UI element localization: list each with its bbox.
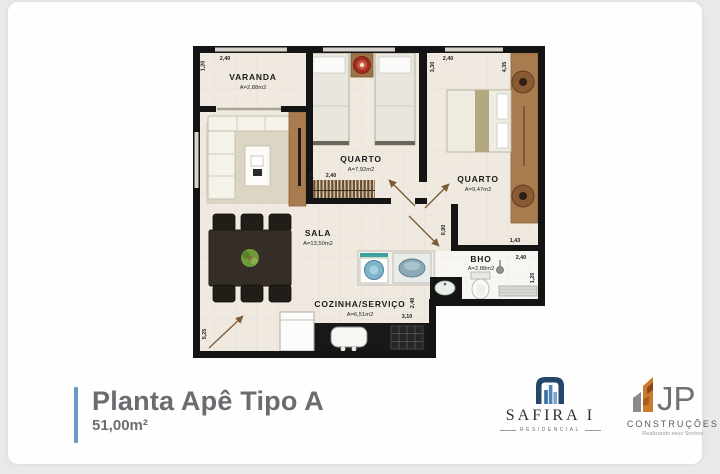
room-label-sala: SALA xyxy=(305,228,331,238)
dimension-label: 5,25 xyxy=(202,329,208,340)
room-area-cozinha: A=6,51m2 xyxy=(347,312,374,318)
safira-logo: SAFIRA I RESIDENCIAL xyxy=(500,374,601,433)
dining-chair xyxy=(241,285,263,302)
jp-tagline: Realizando seus Sonhos xyxy=(642,431,703,437)
safira-tagline: RESIDENCIAL xyxy=(520,427,581,433)
dimension-label: 1,20 xyxy=(530,273,536,284)
fridge xyxy=(280,312,314,351)
window xyxy=(445,48,503,52)
dimension-label: 2,40 xyxy=(410,298,416,309)
toilet xyxy=(471,272,490,299)
jp-logo: JP CONSTRUÇÕES Realizando seus Sonhos xyxy=(627,374,719,437)
page-title: Planta Apê Tipo A xyxy=(92,387,324,415)
window xyxy=(215,48,287,52)
dimension-label: 3,30 xyxy=(430,62,436,73)
jp-name: CONSTRUÇÕES xyxy=(627,419,719,429)
window xyxy=(323,48,395,52)
kitchen-sink xyxy=(331,327,367,347)
single-bed xyxy=(375,53,415,145)
page-subtitle: 51,00m² xyxy=(92,417,324,434)
room-label-quarto2: QUARTO xyxy=(457,174,498,184)
dining-set xyxy=(209,214,291,302)
logos: SAFIRA I RESIDENCIAL JP CONSTRUÇÕES Real… xyxy=(500,374,719,437)
dimension-label: 1,20 xyxy=(201,61,207,72)
dimension-label: 2,40 xyxy=(516,255,527,261)
room-label-quarto1: QUARTO xyxy=(340,154,381,164)
laundry-counter xyxy=(358,251,434,285)
room-label-cozinha: COZINHA/SERVIÇO xyxy=(314,299,405,309)
window xyxy=(195,132,199,188)
accent-bar xyxy=(74,387,78,443)
room-area-quarto1: A=7,92m2 xyxy=(348,167,375,173)
room-area-sala: A=13,50m2 xyxy=(303,241,333,247)
dining-chair xyxy=(213,285,235,302)
dimension-label: 4,35 xyxy=(502,62,508,73)
dimension-label: 2,40 xyxy=(326,173,337,179)
nightstand xyxy=(351,53,373,77)
divider xyxy=(585,430,601,431)
coffee-table xyxy=(245,146,270,186)
room-area-bho: A=2,88m2 xyxy=(468,266,495,272)
room-area-quarto2: A=9,47m2 xyxy=(465,187,492,193)
dimension-label: 1,43 xyxy=(510,238,521,244)
kitchen-counter xyxy=(313,323,436,351)
room-label-bho: BHO xyxy=(470,254,491,264)
tv-panel xyxy=(289,112,306,206)
dining-chair xyxy=(241,214,263,231)
presentation-card: VARANDA A=2,88m2 QUARTO A=7,92m2 QUARTO … xyxy=(8,2,702,464)
safira-name: SAFIRA I xyxy=(506,407,595,425)
dimension-label: 3,10 xyxy=(402,314,413,320)
dimension-label: 3,30 xyxy=(309,171,315,182)
floor-plan-svg: VARANDA A=2,88m2 QUARTO A=7,92m2 QUARTO … xyxy=(193,46,545,358)
shower-mat xyxy=(499,286,537,296)
room-label-varanda: VARANDA xyxy=(229,72,276,82)
dimension-label: 2,40 xyxy=(443,56,454,62)
dimension-label: 0,90 xyxy=(441,225,447,236)
floor-plan: VARANDA A=2,88m2 QUARTO A=7,92m2 QUARTO … xyxy=(193,46,545,358)
safira-building-icon xyxy=(533,374,567,404)
dimension-label: 2,40 xyxy=(220,56,231,62)
double-bed xyxy=(447,90,511,152)
jp-building-icon: JP xyxy=(627,374,719,418)
divider xyxy=(500,430,516,431)
shower-head xyxy=(497,267,504,274)
plan-caption: Planta Apê Tipo A 51,00m² xyxy=(74,387,324,443)
dining-chair xyxy=(213,214,235,231)
dining-chair xyxy=(269,285,291,302)
jp-monogram: JP xyxy=(657,380,696,417)
single-bed xyxy=(309,53,349,145)
dining-chair xyxy=(269,214,291,231)
room-area-varanda: A=2,88m2 xyxy=(240,85,267,91)
